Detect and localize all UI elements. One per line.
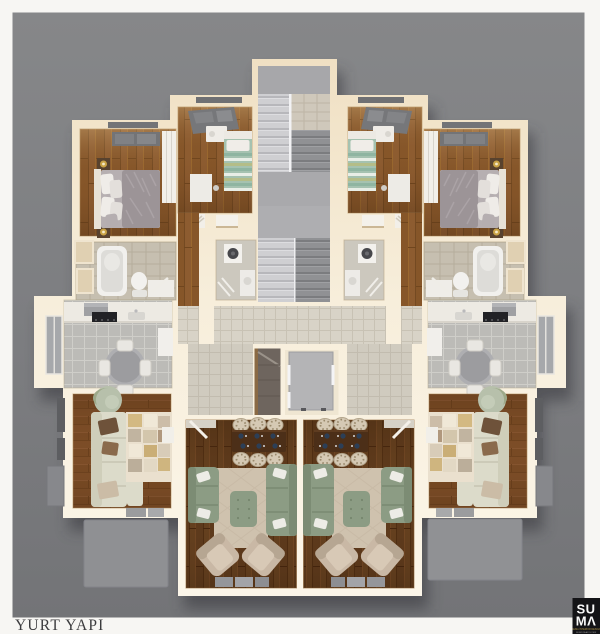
svg-text:MΛ: MΛ bbox=[576, 614, 597, 629]
svg-text:YURT YAPI: YURT YAPI bbox=[15, 617, 105, 634]
svg-text:SUMA İNTERİOR DESIGN: SUMA İNTERİOR DESIGN bbox=[572, 628, 600, 631]
svg-text:MOBİLYA ATOLYESİ: MOBİLYA ATOLYESİ bbox=[576, 631, 596, 634]
